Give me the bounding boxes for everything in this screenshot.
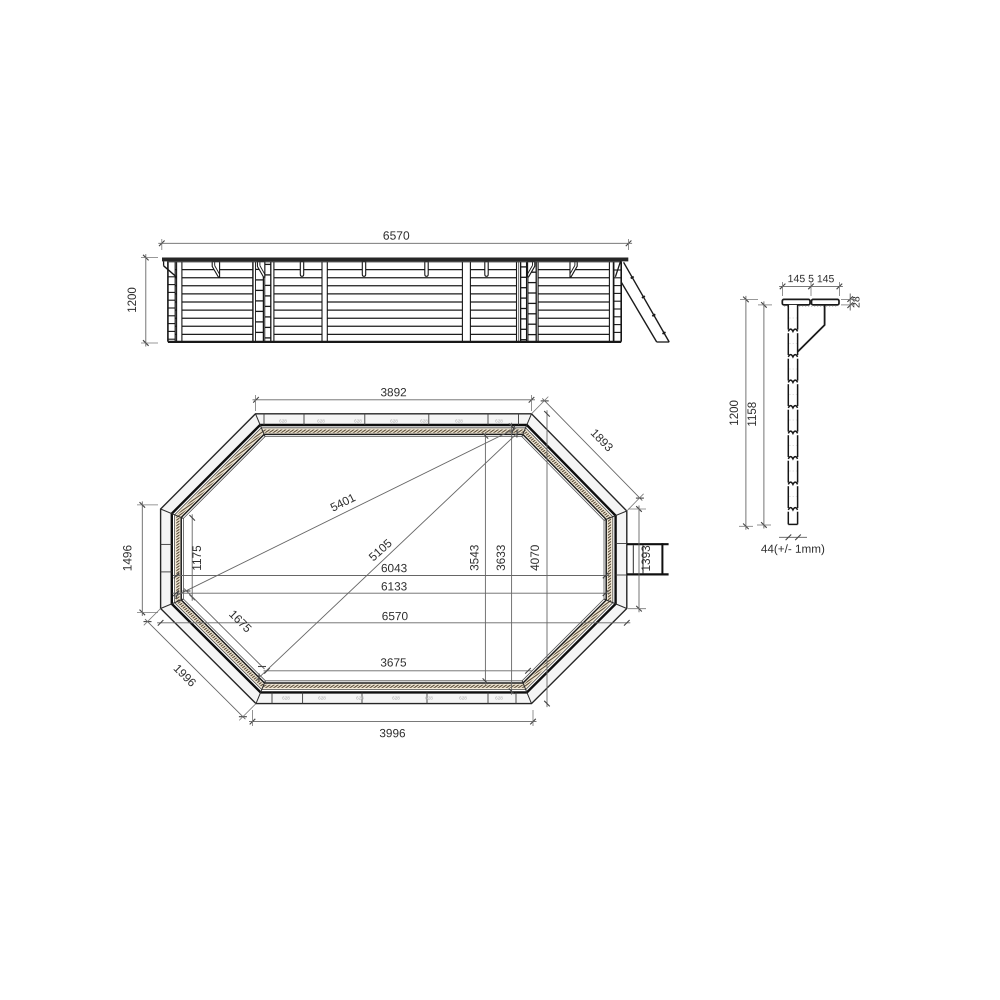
svg-text:1200: 1200 (729, 400, 741, 426)
svg-text:3543: 3543 (468, 544, 482, 571)
svg-text:6570: 6570 (382, 609, 409, 623)
svg-text:145 5 145: 145 5 145 (788, 273, 835, 285)
svg-text:628: 628 (282, 696, 290, 701)
svg-text:1393: 1393 (639, 545, 653, 572)
svg-text:628: 628 (354, 419, 362, 424)
svg-text:6133: 6133 (381, 579, 408, 593)
svg-text:5401: 5401 (328, 490, 358, 514)
svg-text:628: 628 (356, 696, 364, 701)
svg-text:1175: 1175 (190, 545, 204, 571)
svg-text:628: 628 (317, 419, 325, 424)
svg-text:4070: 4070 (528, 544, 542, 571)
svg-text:44(+/- 1mm): 44(+/- 1mm) (761, 543, 825, 556)
svg-text:28: 28 (851, 296, 863, 308)
svg-text:1893: 1893 (588, 426, 617, 455)
svg-text:1158: 1158 (747, 402, 759, 427)
svg-text:3892: 3892 (380, 385, 406, 399)
svg-text:628: 628 (279, 419, 287, 424)
svg-text:628: 628 (392, 696, 400, 701)
svg-text:3996: 3996 (379, 726, 406, 740)
svg-text:1200: 1200 (127, 287, 139, 313)
svg-text:6043: 6043 (381, 561, 408, 575)
svg-text:1496: 1496 (120, 545, 134, 572)
svg-text:628: 628 (495, 696, 503, 701)
svg-text:628: 628 (459, 696, 467, 701)
svg-text:5105: 5105 (366, 536, 395, 564)
svg-text:628: 628 (455, 419, 463, 424)
svg-text:628: 628 (390, 419, 398, 424)
svg-text:628: 628 (495, 419, 503, 424)
svg-text:1996: 1996 (171, 661, 200, 690)
svg-text:3675: 3675 (380, 655, 407, 669)
svg-text:6570: 6570 (383, 229, 410, 243)
svg-text:628: 628 (318, 696, 326, 701)
svg-text:628: 628 (425, 696, 433, 701)
svg-text:628: 628 (420, 419, 428, 424)
svg-text:3633: 3633 (494, 544, 508, 571)
svg-text:1675: 1675 (226, 607, 255, 636)
